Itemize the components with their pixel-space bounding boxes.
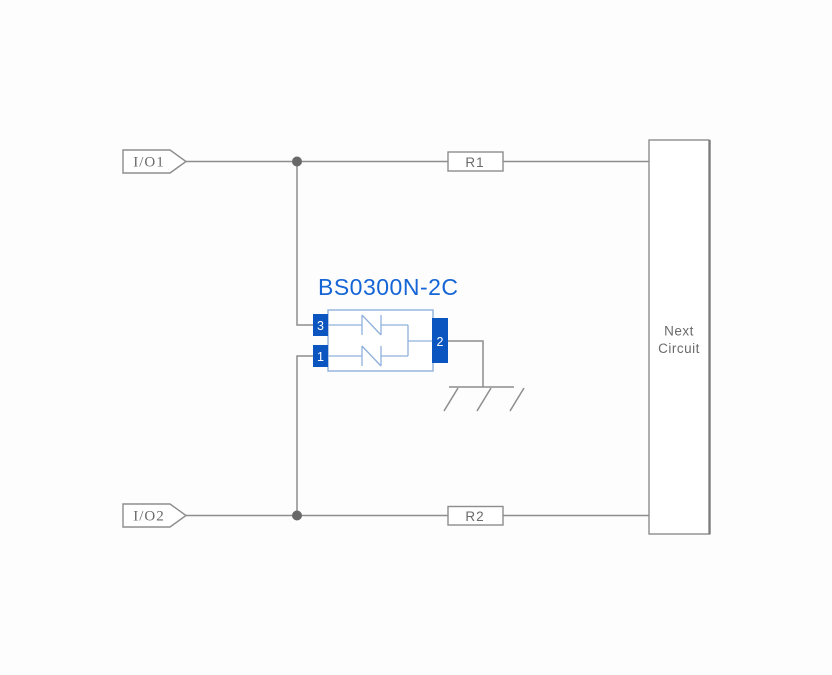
resistor-r2-label: R2 [465, 509, 484, 524]
ground-hash [510, 388, 524, 411]
component-title: BS0300N-2C [318, 274, 459, 300]
ground-hash [477, 388, 491, 411]
next-circuit-label-line1: Next [664, 324, 694, 339]
branch-wire-bottom [297, 356, 313, 516]
junction-dot-top [292, 157, 302, 167]
pin2-label: 2 [437, 335, 444, 349]
io2-label: I/O2 [133, 509, 165, 525]
junction-dot-bottom [292, 511, 302, 521]
pin1-label: 1 [317, 350, 324, 364]
ground-wire [448, 341, 483, 387]
io1-label: I/O1 [133, 155, 165, 171]
circuit-diagram: I/O1 I/O2 R1 R2 BS0300N-2C [0, 0, 832, 675]
next-circuit-label-line2: Circuit [658, 341, 700, 356]
chassis-ground-icon [444, 387, 524, 411]
resistor-r1-label: R1 [465, 155, 484, 170]
schematic: I/O1 I/O2 R1 R2 BS0300N-2C [0, 0, 832, 675]
branch-wire-top [297, 162, 313, 326]
ground-hash [444, 388, 458, 411]
pin3-label: 3 [317, 319, 324, 333]
